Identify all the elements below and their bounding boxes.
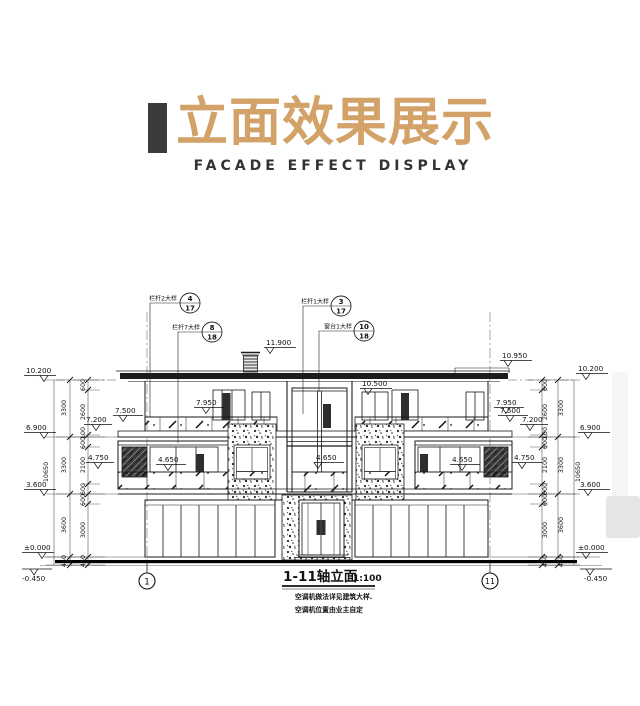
drawing-title: 1-11轴立面 (283, 568, 358, 585)
callout-4-sheet: 18 (359, 333, 369, 341)
dim-r-3600: 3600 (557, 517, 565, 533)
drawing-title-block: 1-11轴立面 1:100 空调机做法详见建筑大样. 空调机位置由业主自定 (282, 568, 382, 614)
callout-2-label: 栏杆7大样 (172, 324, 200, 332)
elev-left-neg: -0.450 (22, 574, 46, 583)
dim-r-600c: 600 (541, 483, 549, 495)
entrance (282, 495, 352, 560)
elev-c4650: 4.650 (316, 453, 337, 462)
dim-l-450b: 450 (60, 555, 68, 567)
dim-r-600a: 600 (541, 379, 549, 391)
page: 立面效果展示 FACADE EFFECT DISPLAY (0, 0, 640, 706)
roof (116, 368, 510, 382)
callout-1-num: 4 (188, 295, 193, 303)
callout-3-num: 3 (339, 298, 344, 306)
dim-l-2100: 2100 (79, 457, 87, 473)
axis-left-number: 1 (144, 578, 150, 588)
drawing-note-1: 空调机做法详见建筑大样. (295, 592, 372, 601)
dim-l-3000: 3000 (79, 522, 87, 538)
callout-1-label: 栏杆2大样 (149, 295, 177, 303)
elev-tower: 10.500 (362, 379, 388, 388)
facade-elevation-drawing: 600 2600 100 600 2100 600 600 3000 450 3… (0, 0, 640, 706)
elev-l4650: 4.650 (158, 455, 179, 464)
dimension-text-right: 600 2600 100 600 2100 600 600 3000 450 3… (541, 379, 582, 567)
dim-l-600c: 600 (79, 483, 87, 495)
elev-chimney: 11.900 (266, 338, 292, 347)
dim-r-600d: 600 (541, 494, 549, 506)
elev-r7500: 7.500 (500, 406, 521, 415)
chimney (241, 353, 260, 373)
dim-r-450b: 450 (557, 555, 565, 567)
elev-roof-right: 10.950 (502, 351, 528, 360)
callout-3-label: 栏杆1大样 (301, 298, 329, 306)
callout-4-label: 窗台1大样 (324, 323, 352, 331)
dim-r-450a: 450 (541, 555, 549, 567)
elev-l7200: 7.200 (86, 415, 107, 424)
dimension-lines-right (528, 377, 580, 568)
elev-r7200: 7.200 (522, 415, 543, 424)
elev-right-zero: ±0.000 (578, 543, 605, 552)
dim-r-3000: 3000 (541, 522, 549, 538)
elev-right-6900: 6.900 (580, 423, 601, 432)
dim-r-2100: 2100 (541, 457, 549, 473)
elev-left-6900: 6.900 (26, 423, 47, 432)
elev-r4650: 4.650 (452, 455, 473, 464)
elev-right-3600: 3.600 (580, 480, 601, 489)
dim-l-450a: 450 (79, 555, 87, 567)
callout-3-sheet: 17 (336, 308, 346, 316)
drawing-note-2: 空调机位置由业主自定 (295, 605, 363, 614)
elev-right-neg: -0.450 (584, 574, 608, 583)
ground-line (55, 560, 577, 563)
elev-left-10200: 10.200 (26, 366, 52, 375)
dim-l-3300b: 3300 (60, 457, 68, 473)
dim-r-3300b: 3300 (557, 457, 565, 473)
elev-r4750: 4.750 (514, 453, 535, 462)
axis-right-number: 11 (485, 577, 495, 586)
dim-r-3300a: 3300 (557, 400, 565, 416)
drawing-scale: 1:100 (353, 574, 382, 584)
elev-left-zero: ±0.000 (24, 543, 51, 552)
watermark-streak (612, 372, 628, 537)
callout-2-num: 8 (210, 324, 215, 332)
elev-left-3600: 3.600 (26, 480, 47, 489)
callout-4-num: 10 (359, 323, 369, 331)
dim-l-600a: 600 (79, 379, 87, 391)
dim-l-600b: 600 (79, 437, 87, 449)
callout-1-sheet: 17 (185, 305, 195, 313)
dim-l-3600: 3600 (60, 517, 68, 533)
elev-l7500: 7.500 (115, 406, 136, 415)
dim-l-600d: 600 (79, 494, 87, 506)
penthouse (118, 381, 512, 437)
dim-r-600b: 600 (541, 437, 549, 449)
callout-2-sheet: 18 (207, 334, 217, 342)
dim-l-3300a: 3300 (60, 400, 68, 416)
elev-l7950: 7.950 (196, 398, 217, 407)
elev-l4750: 4.750 (88, 453, 109, 462)
dimension-text-left: 600 2600 100 600 2100 600 600 3000 450 3… (42, 379, 87, 567)
dimension-lines-left (46, 377, 105, 568)
elev-right-10200: 10.200 (578, 364, 604, 373)
